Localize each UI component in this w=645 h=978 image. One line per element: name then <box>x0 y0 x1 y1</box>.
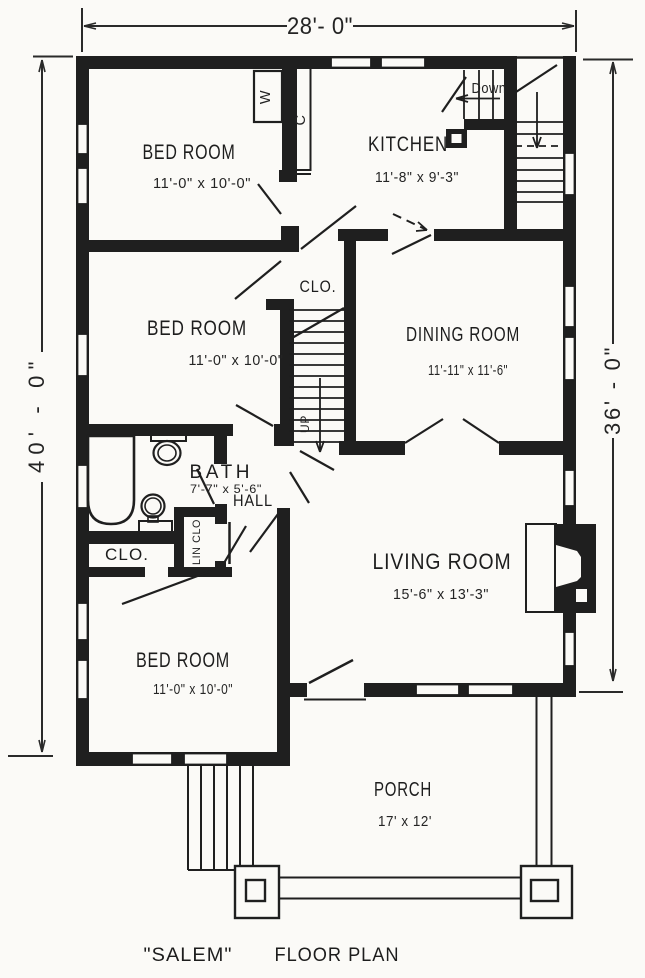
svg-text:LIVING ROOM: LIVING ROOM <box>373 549 512 574</box>
svg-text:11'-0" x 10'-0": 11'-0" x 10'-0" <box>153 682 233 698</box>
svg-text:PORCH: PORCH <box>374 779 432 801</box>
svg-text:CLO.: CLO. <box>300 277 337 296</box>
svg-text:UP: UP <box>298 415 312 433</box>
svg-text:"SALEM": "SALEM" <box>144 945 233 966</box>
svg-text:28'- 0": 28'- 0" <box>287 13 353 40</box>
svg-text:C: C <box>293 114 309 125</box>
svg-text:15'-6" x 13'-3": 15'-6" x 13'-3" <box>393 587 489 603</box>
svg-text:BED ROOM: BED ROOM <box>136 649 230 672</box>
svg-text:Down: Down <box>472 81 507 97</box>
svg-text:11'-11" x 11'-6": 11'-11" x 11'-6" <box>428 363 508 379</box>
svg-text:11'-0" x 10'-0": 11'-0" x 10'-0" <box>189 353 284 369</box>
svg-text:FLOOR PLAN: FLOOR PLAN <box>275 945 400 966</box>
svg-text:BATH: BATH <box>190 462 251 483</box>
svg-text:CLO.: CLO. <box>105 545 149 564</box>
svg-text:11'-8" x 9'-3": 11'-8" x 9'-3" <box>375 170 459 186</box>
svg-text:DINING ROOM: DINING ROOM <box>406 324 520 346</box>
svg-text:BED ROOM: BED ROOM <box>147 317 247 340</box>
svg-text:LIN CLO: LIN CLO <box>191 519 203 565</box>
svg-text:HALL: HALL <box>233 491 273 510</box>
svg-text:17' x 12': 17' x 12' <box>378 814 432 830</box>
svg-text:BED ROOM: BED ROOM <box>143 141 236 164</box>
svg-text:W: W <box>258 90 274 104</box>
svg-text:KITCHEN: KITCHEN <box>368 133 448 156</box>
svg-text:11'-0" x 10'-0": 11'-0" x 10'-0" <box>153 176 251 192</box>
